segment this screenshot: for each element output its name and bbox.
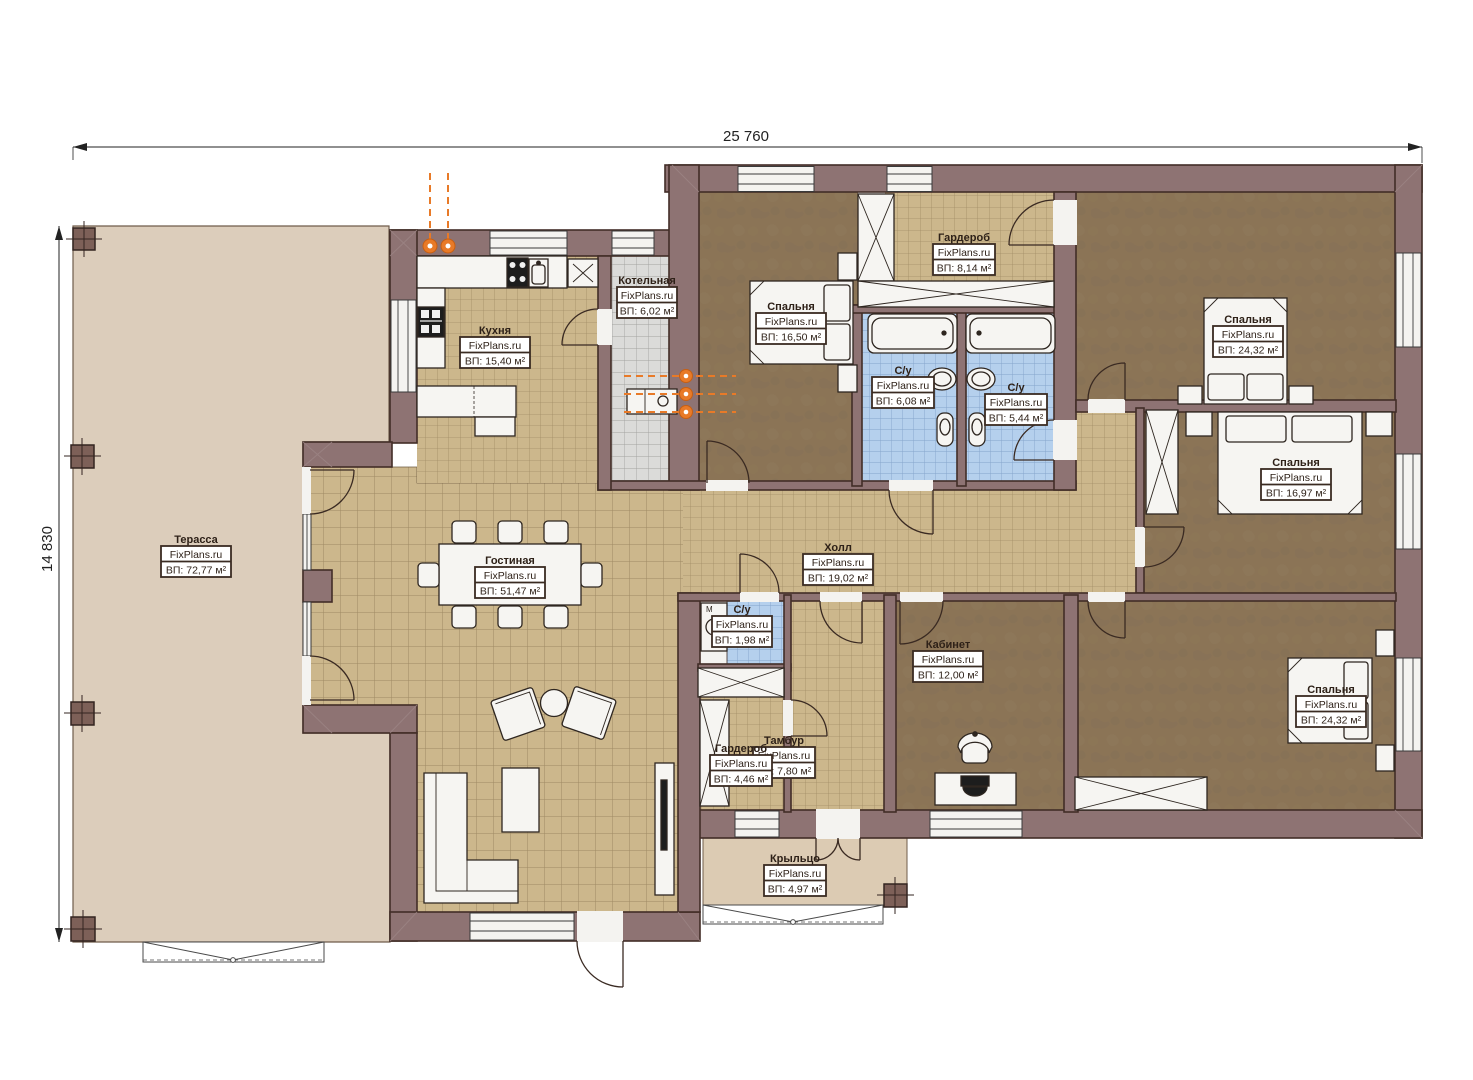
svg-text:ВП: 4,46 м²: ВП: 4,46 м² bbox=[714, 774, 769, 786]
svg-text:FixPlans.ru: FixPlans.ru bbox=[1222, 329, 1275, 341]
svg-text:ВП: 16,97 м²: ВП: 16,97 м² bbox=[1266, 488, 1327, 500]
svg-text:ВП: 72,77 м²: ВП: 72,77 м² bbox=[166, 565, 227, 577]
svg-text:FixPlans.ru: FixPlans.ru bbox=[765, 316, 818, 328]
svg-text:Кухня: Кухня bbox=[479, 325, 511, 337]
svg-text:Терасса: Терасса bbox=[174, 534, 218, 546]
svg-text:14 830: 14 830 bbox=[39, 526, 56, 572]
svg-text:FixPlans.ru: FixPlans.ru bbox=[715, 758, 768, 770]
svg-text:FixPlans.ru: FixPlans.ru bbox=[716, 619, 769, 631]
svg-text:FixPlans.ru: FixPlans.ru bbox=[1270, 472, 1323, 484]
svg-text:FixPlans.ru: FixPlans.ru bbox=[877, 380, 930, 392]
svg-text:FixPlans.ru: FixPlans.ru bbox=[938, 247, 991, 259]
svg-text:FixPlans.ru: FixPlans.ru bbox=[469, 340, 522, 352]
svg-text:Спальня: Спальня bbox=[1224, 314, 1272, 326]
svg-text:М: М bbox=[706, 605, 713, 614]
svg-text:Крыльцо: Крыльцо bbox=[770, 853, 820, 865]
svg-text:FixPlans.ru: FixPlans.ru bbox=[922, 654, 975, 666]
svg-text:С/у: С/у bbox=[894, 365, 912, 377]
svg-text:Спальня: Спальня bbox=[1307, 684, 1355, 696]
svg-text:Холл: Холл bbox=[824, 542, 852, 554]
svg-text:Гардероб: Гардероб bbox=[715, 743, 767, 755]
svg-text:Спальня: Спальня bbox=[767, 301, 815, 313]
svg-text:ВП: 24,32 м²: ВП: 24,32 м² bbox=[1301, 715, 1362, 727]
svg-text:Кабинет: Кабинет bbox=[926, 639, 971, 651]
svg-text:ВП: 4,97 м²: ВП: 4,97 м² bbox=[768, 884, 823, 896]
svg-text:FixPlans.ru: FixPlans.ru bbox=[990, 397, 1043, 409]
svg-text:Гостиная: Гостиная bbox=[485, 555, 535, 567]
svg-text:ВП: 6,08 м²: ВП: 6,08 м² bbox=[876, 396, 931, 408]
svg-text:Котельная: Котельная bbox=[618, 275, 676, 287]
svg-text:Тамбур: Тамбур bbox=[764, 735, 804, 747]
svg-text:ВП: 1,98 м²: ВП: 1,98 м² bbox=[715, 635, 770, 647]
svg-text:FixPlans.ru: FixPlans.ru bbox=[484, 570, 537, 582]
svg-text:ВП: 6,02 м²: ВП: 6,02 м² bbox=[620, 306, 675, 318]
svg-text:Гардероб: Гардероб bbox=[938, 232, 990, 244]
svg-text:25 760: 25 760 bbox=[723, 128, 769, 145]
svg-text:ВП: 19,02 м²: ВП: 19,02 м² bbox=[808, 573, 869, 585]
svg-text:ВП: 51,47 м²: ВП: 51,47 м² bbox=[480, 586, 541, 598]
svg-text:FixPlans.ru: FixPlans.ru bbox=[812, 557, 865, 569]
svg-text:ВП: 15,40 м²: ВП: 15,40 м² bbox=[465, 356, 526, 368]
svg-text:ВП: 24,32 м²: ВП: 24,32 м² bbox=[1218, 345, 1279, 357]
svg-text:С/у: С/у bbox=[733, 604, 751, 616]
svg-text:ВП: 16,50 м²: ВП: 16,50 м² bbox=[761, 332, 822, 344]
svg-text:FixPlans.ru: FixPlans.ru bbox=[1305, 699, 1358, 711]
svg-text:ВП: 5,44 м²: ВП: 5,44 м² bbox=[989, 413, 1044, 425]
svg-text:ВП: 8,14 м²: ВП: 8,14 м² bbox=[937, 263, 992, 275]
svg-text:ВП: 12,00 м²: ВП: 12,00 м² bbox=[918, 670, 979, 682]
svg-text:FixPlans.ru: FixPlans.ru bbox=[621, 290, 674, 302]
svg-text:С/у: С/у bbox=[1007, 382, 1025, 394]
svg-text:Спальня: Спальня bbox=[1272, 457, 1320, 469]
svg-text:FixPlans.ru: FixPlans.ru bbox=[769, 868, 822, 880]
svg-text:FixPlans.ru: FixPlans.ru bbox=[170, 549, 223, 561]
